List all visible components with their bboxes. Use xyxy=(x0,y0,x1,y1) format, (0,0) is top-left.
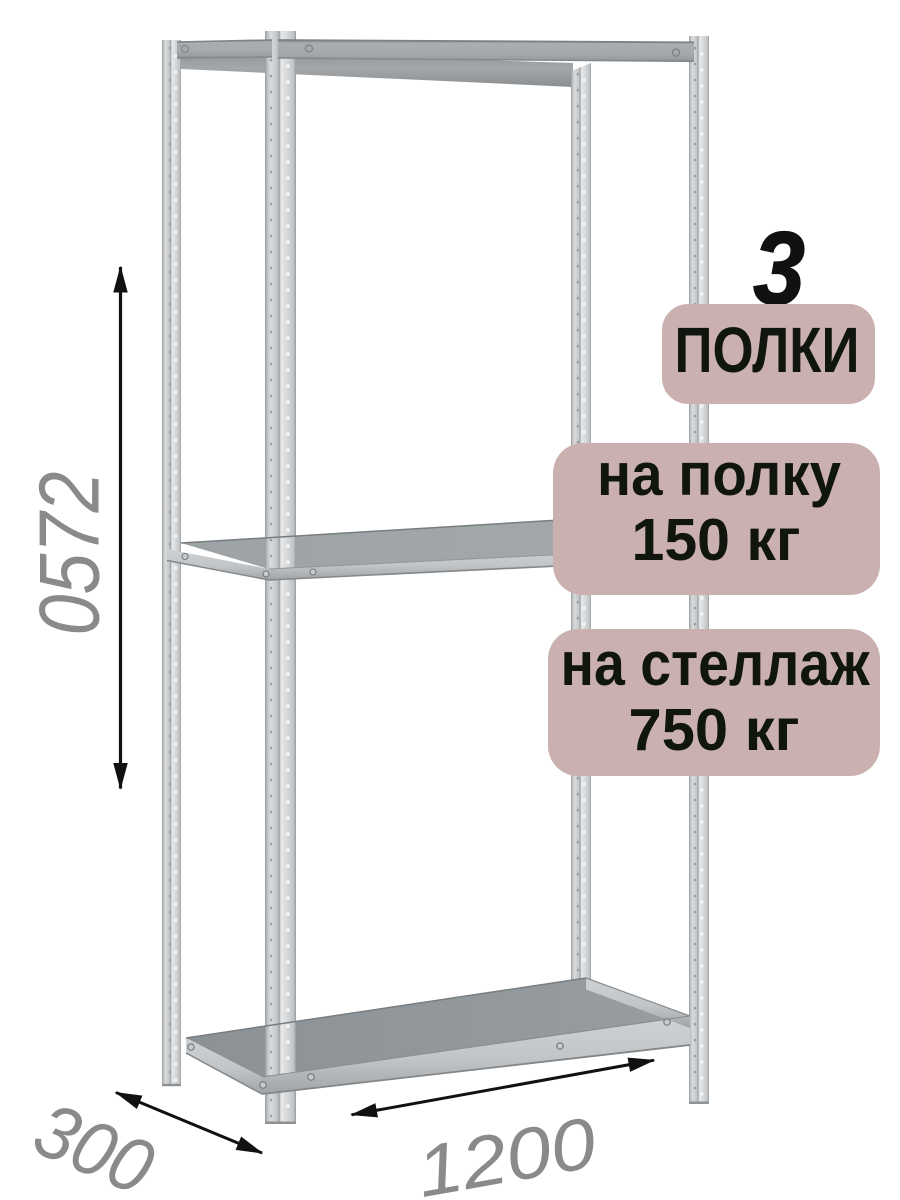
svg-text:на стеллаж: на стеллаж xyxy=(561,630,871,699)
svg-text:на полку: на полку xyxy=(597,441,842,508)
svg-text:0572: 0572 xyxy=(23,472,118,636)
svg-text:ПОЛКИ: ПОЛКИ xyxy=(675,314,860,386)
svg-text:150 кг: 150 кг xyxy=(632,507,801,573)
svg-text:750 кг: 750 кг xyxy=(629,697,800,763)
